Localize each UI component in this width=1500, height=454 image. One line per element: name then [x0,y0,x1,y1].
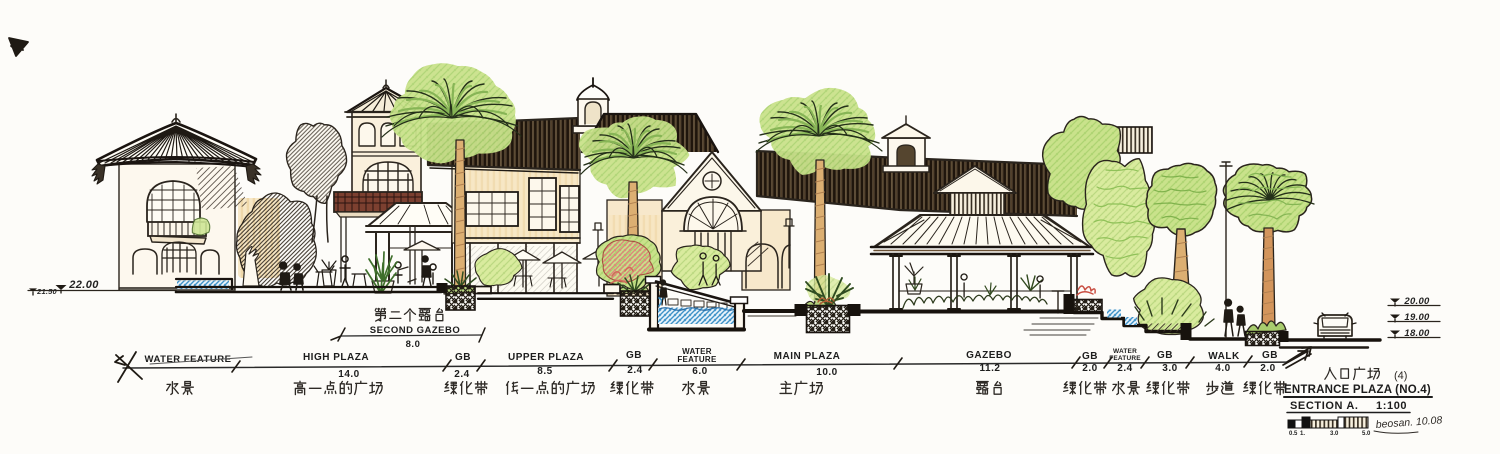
svg-text:0.5: 0.5 [1289,431,1298,437]
svg-text:SECTION A.: SECTION A. [1290,400,1359,412]
svg-text:FEATURE: FEATURE [677,355,717,364]
svg-text:3.0: 3.0 [1330,431,1339,437]
svg-text:GB: GB [1262,350,1278,361]
svg-text:GB: GB [626,350,642,361]
svg-text:6.0: 6.0 [692,366,707,377]
svg-text:WALK: WALK [1208,351,1240,362]
svg-text:11.2: 11.2 [980,363,1001,374]
svg-text:2.0: 2.0 [1082,363,1097,374]
svg-text:SECOND GAZEBO: SECOND GAZEBO [370,325,460,336]
svg-text:FEATURE: FEATURE [1109,355,1141,362]
svg-text:2.0: 2.0 [1260,363,1275,374]
svg-text:5.0: 5.0 [1362,431,1371,437]
svg-text:2.4: 2.4 [1117,363,1132,374]
svg-text:UPPER PLAZA: UPPER PLAZA [508,352,584,363]
svg-text:4.0: 4.0 [1215,363,1230,374]
svg-text:8.0: 8.0 [406,339,421,350]
svg-text:GB: GB [455,352,471,363]
svg-text:10.0: 10.0 [816,367,837,378]
svg-text:HIGH PLAZA: HIGH PLAZA [303,352,369,363]
svg-text:GB: GB [1082,351,1098,362]
svg-text:1.: 1. [1300,431,1305,437]
svg-text:WATER: WATER [1113,348,1137,355]
svg-text:2.4: 2.4 [627,365,642,376]
svg-text:14.0: 14.0 [338,369,359,380]
svg-text:3.0: 3.0 [1162,363,1177,374]
svg-text:(4): (4) [1394,370,1407,382]
svg-text:GAZEBO: GAZEBO [966,350,1012,361]
svg-text:8.5: 8.5 [537,366,552,377]
svg-text:ENTRANCE PLAZA (NO.4): ENTRANCE PLAZA (NO.4) [1284,384,1431,396]
svg-text:21.50: 21.50 [36,287,57,296]
svg-text:2.4: 2.4 [454,369,469,380]
svg-text:GB: GB [1157,350,1173,361]
svg-text:MAIN PLAZA: MAIN PLAZA [774,351,841,362]
svg-text:22.00: 22.00 [68,279,99,291]
svg-text:1:100: 1:100 [1376,400,1407,412]
